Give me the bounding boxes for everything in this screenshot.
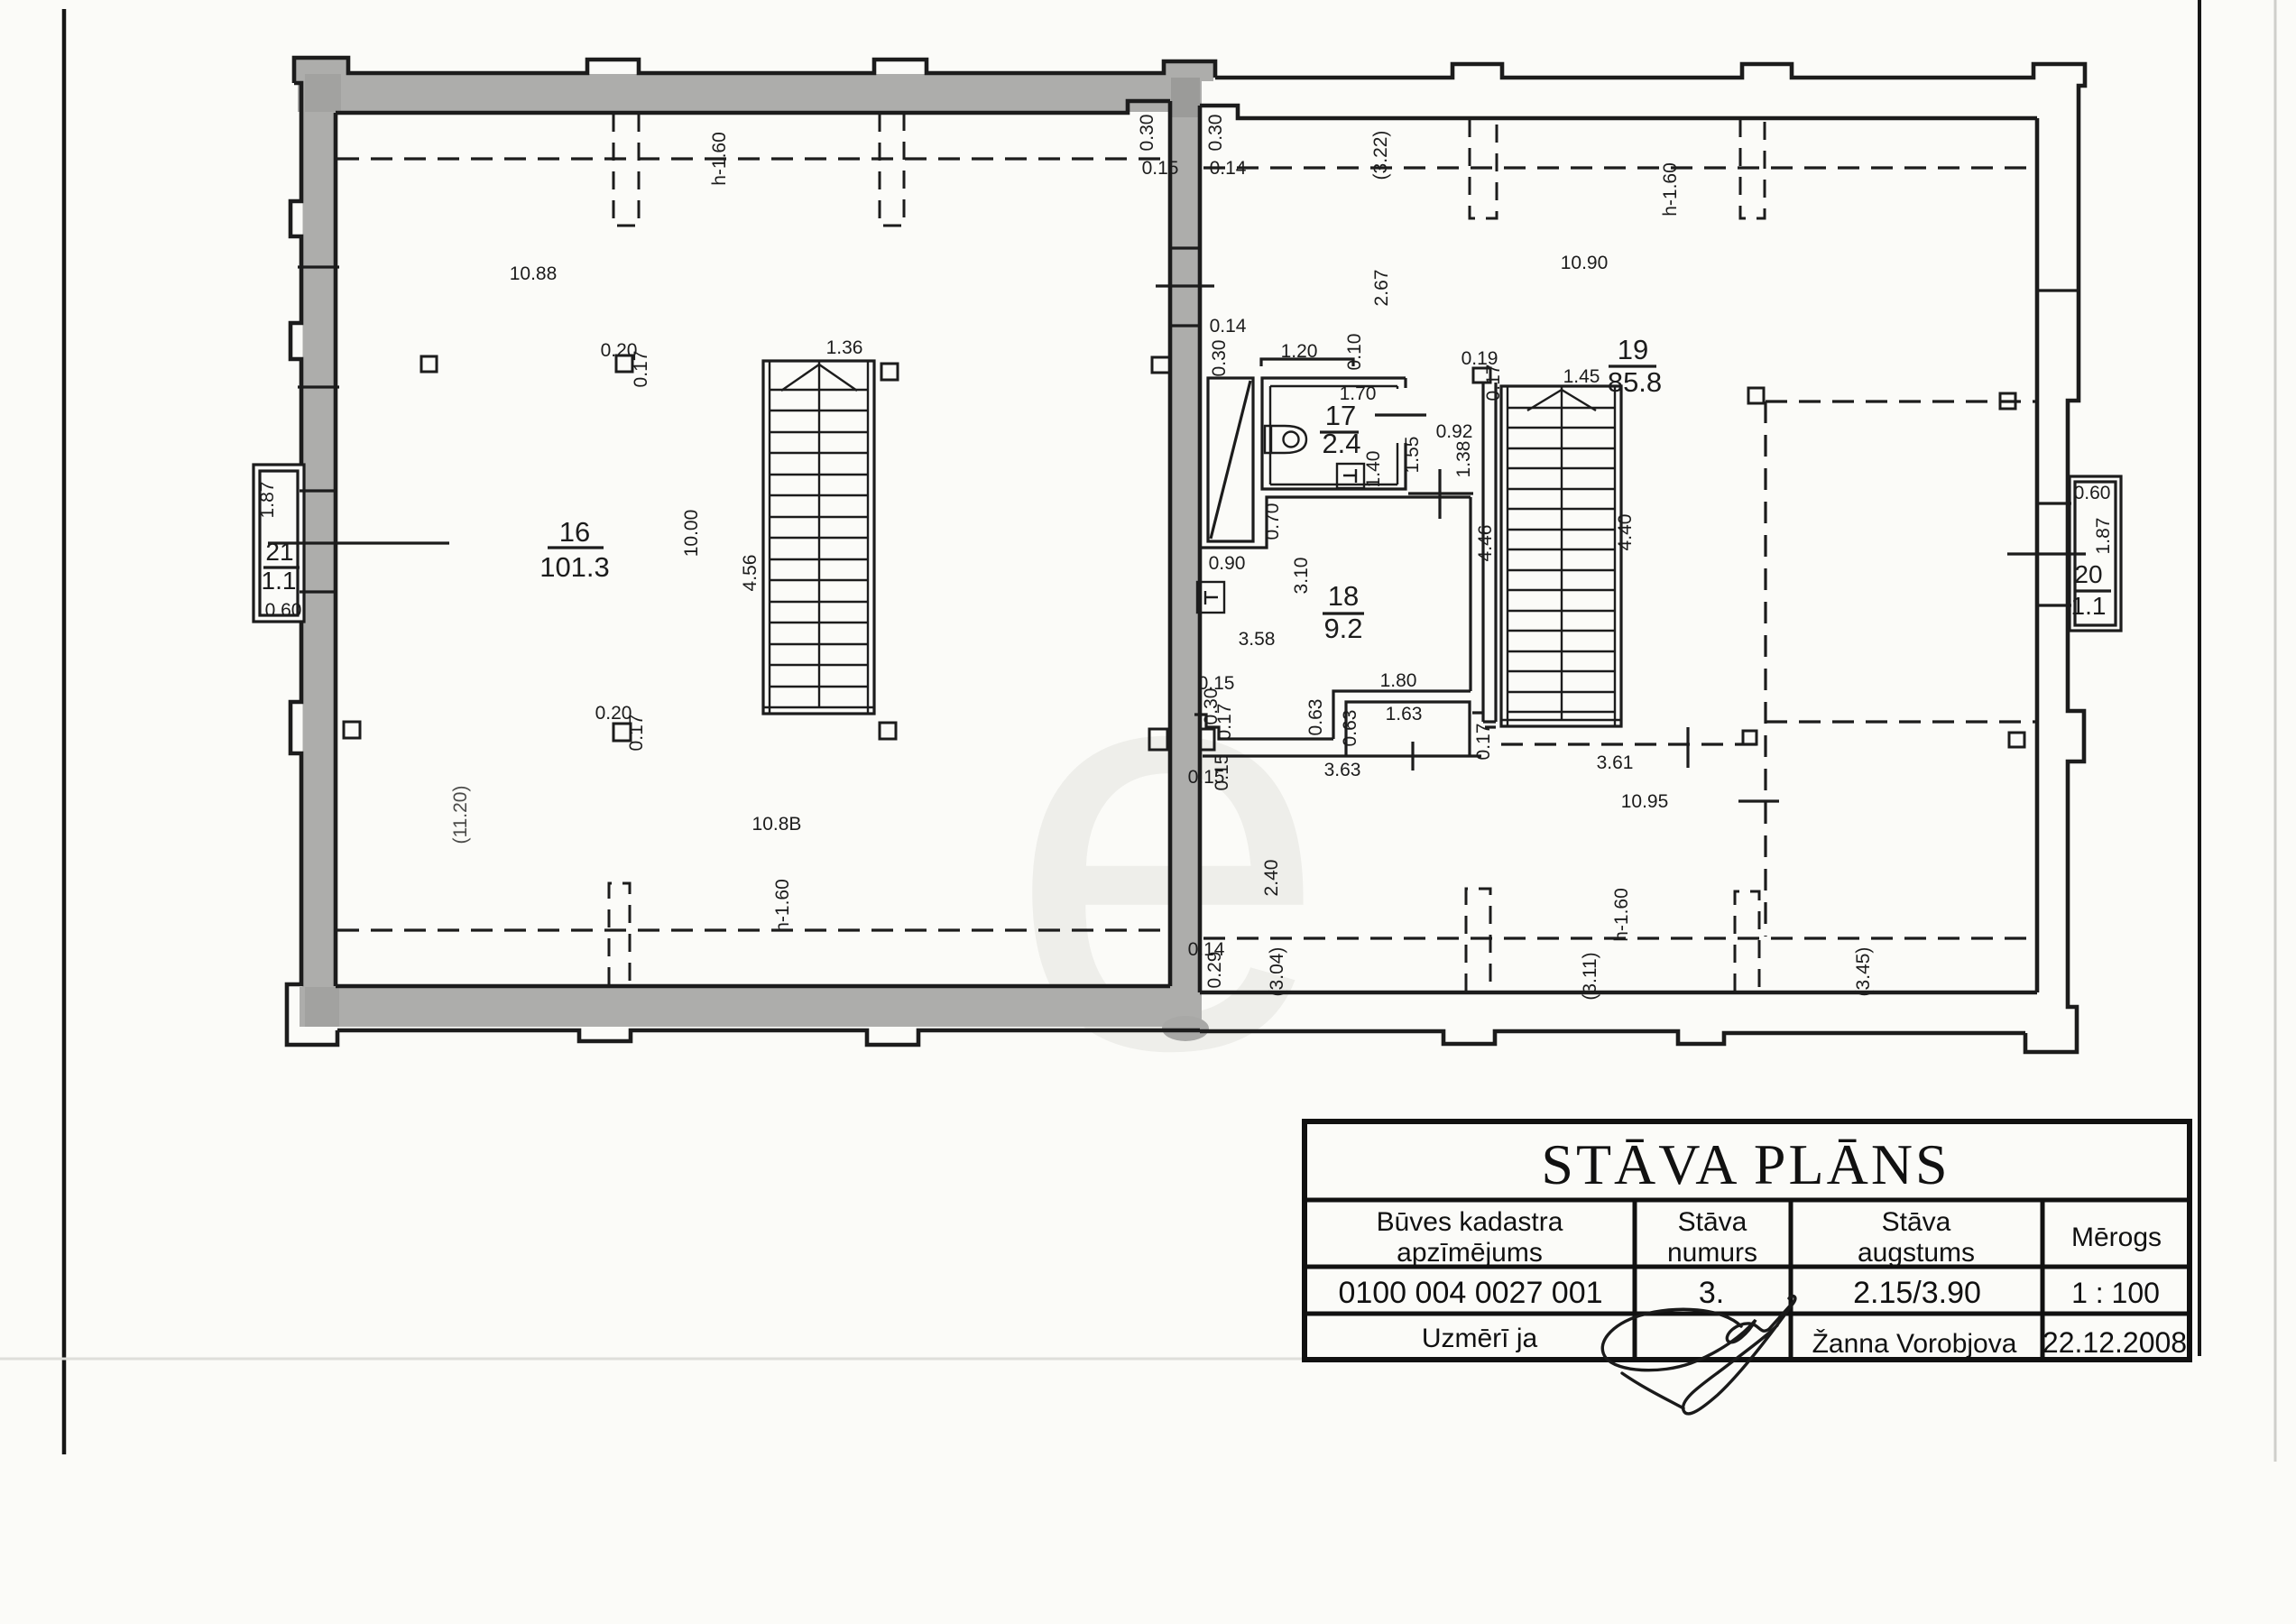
svg-text:h-1.60: h-1.60	[772, 879, 793, 933]
svg-text:19: 19	[1618, 334, 1648, 365]
svg-text:(11.20): (11.20)	[450, 786, 471, 844]
svg-text:0.60: 0.60	[265, 600, 302, 621]
svg-text:2.4: 2.4	[1322, 428, 1360, 459]
svg-text:0.90: 0.90	[1209, 553, 1246, 574]
svg-text:101.3: 101.3	[539, 551, 610, 583]
svg-text:4.56: 4.56	[740, 555, 761, 592]
svg-text:10.88: 10.88	[510, 263, 558, 284]
svg-text:1.20: 1.20	[1281, 341, 1318, 362]
svg-text:0.10: 0.10	[1344, 334, 1365, 371]
svg-text:18: 18	[1328, 580, 1359, 612]
svg-text:1.63: 1.63	[1386, 704, 1423, 724]
svg-text:numurs: numurs	[1667, 1238, 1757, 1268]
svg-text:0.17: 0.17	[1473, 724, 1494, 761]
svg-text:1.1: 1.1	[2071, 592, 2107, 620]
svg-text:1.38: 1.38	[1453, 441, 1474, 478]
svg-text:1.1: 1.1	[262, 567, 297, 595]
svg-text:h-1.60: h-1.60	[1611, 888, 1632, 942]
svg-text:STĀVA PLĀNS: STĀVA PLĀNS	[1541, 1132, 1950, 1196]
svg-text:4.46: 4.46	[1475, 525, 1496, 562]
svg-text:2.40: 2.40	[1261, 860, 1282, 897]
svg-text:0.15: 0.15	[1212, 754, 1232, 791]
svg-text:1.36: 1.36	[826, 337, 863, 358]
svg-text:16: 16	[559, 516, 590, 548]
svg-text:1.70: 1.70	[1340, 383, 1377, 404]
svg-text:1.45: 1.45	[1563, 366, 1600, 387]
svg-text:h-1.60: h-1.60	[1660, 162, 1681, 217]
svg-text:0.63: 0.63	[1340, 710, 1360, 747]
svg-text:Žanna Vorobjova: Žanna Vorobjova	[1812, 1329, 2017, 1359]
svg-text:apzīmējums: apzīmējums	[1397, 1238, 1543, 1268]
svg-text:2.67: 2.67	[1371, 270, 1392, 307]
svg-text:Būves kadastra: Būves kadastra	[1377, 1207, 1563, 1237]
svg-text:0.30: 0.30	[1209, 340, 1230, 377]
svg-text:1 : 100: 1 : 100	[2071, 1277, 2160, 1309]
svg-text:h-1.60: h-1.60	[709, 132, 730, 186]
svg-text:0.17: 0.17	[1214, 704, 1235, 741]
svg-text:3.61: 3.61	[1597, 752, 1634, 773]
svg-text:3.10: 3.10	[1291, 558, 1312, 595]
svg-text:0.60: 0.60	[2074, 483, 2111, 503]
svg-text:(3.22): (3.22)	[1370, 131, 1391, 180]
svg-text:20: 20	[2074, 560, 2102, 588]
svg-text:0.30: 0.30	[1205, 115, 1226, 152]
svg-text:(3.04): (3.04)	[1267, 947, 1287, 997]
svg-text:3.: 3.	[1699, 1276, 1724, 1310]
svg-text:augstums: augstums	[1858, 1238, 1975, 1268]
svg-text:4.40: 4.40	[1615, 514, 1636, 551]
svg-text:1.87: 1.87	[257, 482, 278, 519]
svg-text:0.14: 0.14	[1210, 316, 1247, 337]
svg-text:10.8B: 10.8B	[752, 814, 802, 835]
svg-text:0.92: 0.92	[1436, 421, 1473, 442]
svg-text:9.2: 9.2	[1323, 613, 1362, 644]
svg-text:Stāva: Stāva	[1882, 1207, 1951, 1237]
svg-text:0.30: 0.30	[1137, 115, 1157, 152]
svg-text:0.17: 0.17	[626, 715, 647, 752]
svg-text:10.90: 10.90	[1561, 253, 1609, 273]
svg-text:1.87: 1.87	[2093, 518, 2114, 555]
svg-text:85.8: 85.8	[1608, 366, 1662, 398]
svg-text:0.15: 0.15	[1142, 158, 1179, 179]
svg-text:1.55: 1.55	[1402, 437, 1423, 474]
svg-text:21: 21	[265, 538, 293, 566]
svg-text:Stāva: Stāva	[1678, 1207, 1747, 1237]
svg-text:Mērogs: Mērogs	[2071, 1223, 2162, 1252]
svg-text:3.63: 3.63	[1324, 760, 1361, 780]
svg-text:10.00: 10.00	[681, 510, 702, 558]
svg-text:(3.45): (3.45)	[1853, 947, 1874, 997]
svg-text:0.14: 0.14	[1210, 158, 1247, 179]
svg-text:1.80: 1.80	[1380, 670, 1417, 691]
svg-text:(3.11): (3.11)	[1580, 952, 1600, 1000]
svg-text:0100 004 0027 001: 0100 004 0027 001	[1338, 1276, 1602, 1310]
svg-text:0.17: 0.17	[631, 351, 651, 388]
svg-text:22.12.2008: 22.12.2008	[2042, 1326, 2187, 1359]
svg-text:0.29: 0.29	[1204, 952, 1225, 989]
svg-text:17: 17	[1325, 400, 1356, 431]
svg-text:Uzmērī ja: Uzmērī ja	[1422, 1324, 1538, 1353]
svg-text:0.63: 0.63	[1305, 699, 1326, 736]
svg-text:3.58: 3.58	[1239, 629, 1276, 650]
svg-text:0.70: 0.70	[1262, 503, 1283, 540]
svg-text:1.40: 1.40	[1363, 451, 1384, 488]
svg-text:2.15/3.90: 2.15/3.90	[1853, 1276, 1981, 1310]
svg-text:10.95: 10.95	[1621, 791, 1669, 812]
